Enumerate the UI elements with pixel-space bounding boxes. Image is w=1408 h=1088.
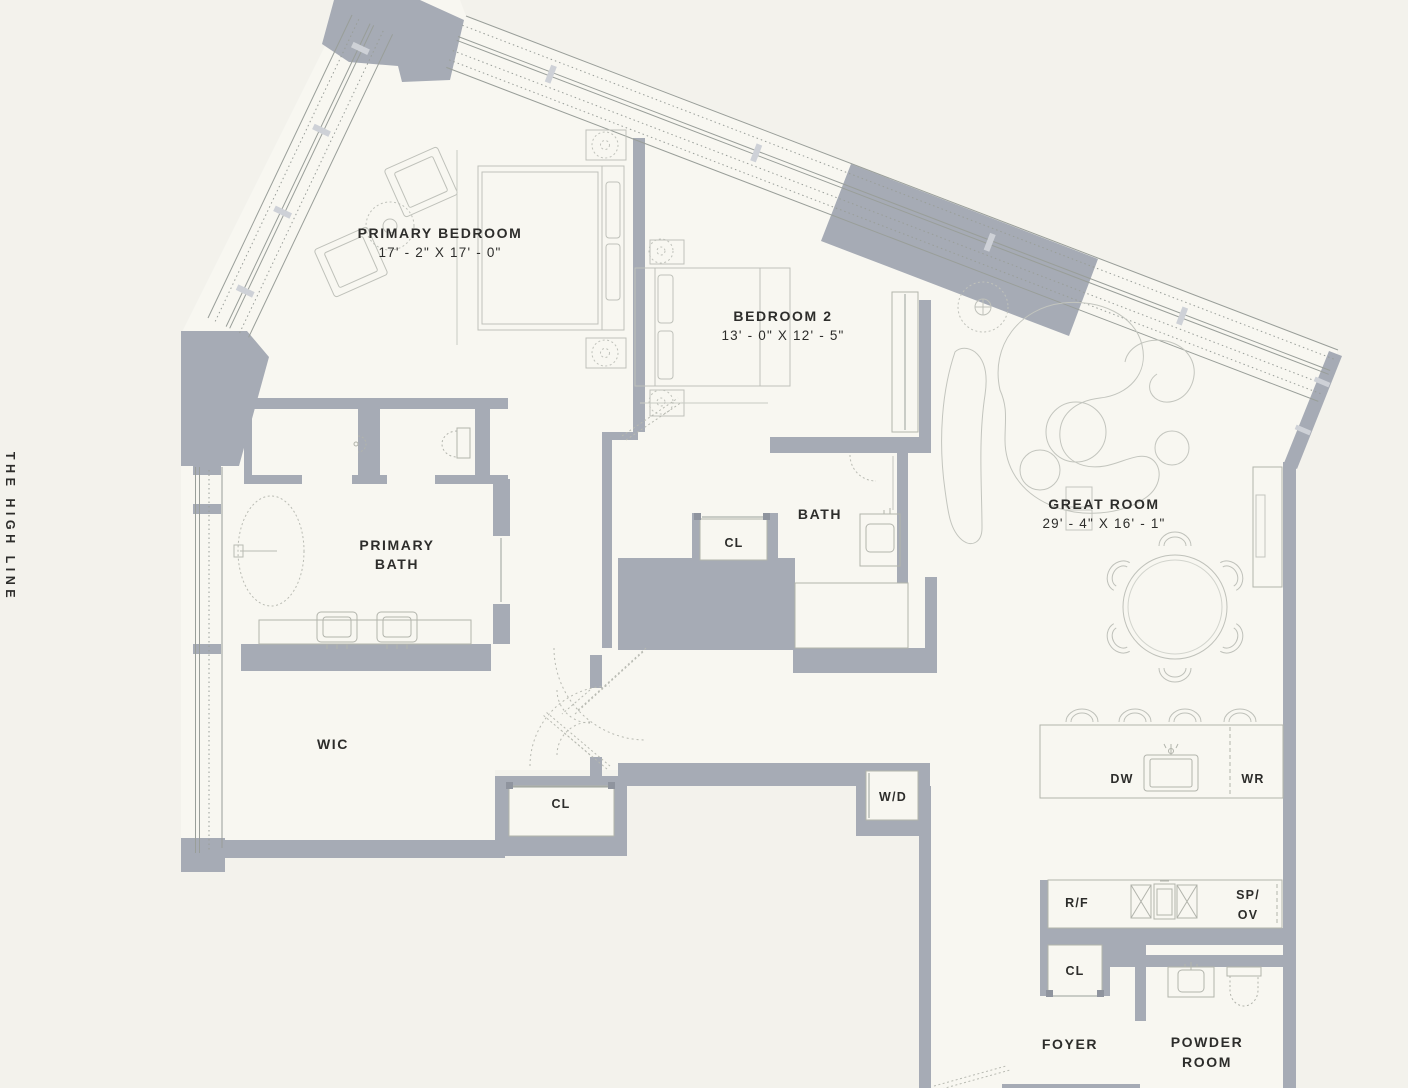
label-bedroom-2-dims: 13' - 0" X 12' - 5" bbox=[721, 328, 844, 343]
label-great-room: GREAT ROOM bbox=[1048, 496, 1159, 512]
label-bedroom-2: BEDROOM 2 bbox=[733, 308, 832, 324]
label-washer-dryer: W/D bbox=[879, 790, 907, 804]
label-bath: BATH bbox=[798, 506, 842, 522]
floor-plan: THE HIGH LINE PRIMARY BEDROOM 17' - 2" X… bbox=[0, 0, 1408, 1088]
closet-hall bbox=[509, 786, 614, 836]
label-powder-2: ROOM bbox=[1182, 1054, 1232, 1070]
label-wic: WIC bbox=[317, 736, 349, 752]
label-primary-bath-1: PRIMARY bbox=[359, 537, 434, 553]
label-powder-1: POWDER bbox=[1171, 1034, 1244, 1050]
cabinet-great-room bbox=[1253, 467, 1282, 587]
shower-room bbox=[795, 583, 908, 648]
label-closet-hall: CL bbox=[551, 797, 570, 811]
label-wine-refrigerator: WR bbox=[1241, 772, 1264, 786]
label-primary-bedroom-dims: 17' - 2" X 17' - 0" bbox=[378, 245, 501, 260]
label-primary-bath-2: BATH bbox=[375, 556, 419, 572]
label-speed-oven-1: SP/ bbox=[1236, 888, 1260, 902]
label-foyer: FOYER bbox=[1042, 1036, 1098, 1052]
floor-plan-page: THE HIGH LINE PRIMARY BEDROOM 17' - 2" X… bbox=[0, 0, 1408, 1088]
label-high-line: THE HIGH LINE bbox=[3, 452, 17, 602]
label-closet-foyer: CL bbox=[1065, 964, 1084, 978]
label-great-room-dims: 29' - 4" X 16' - 1" bbox=[1042, 516, 1165, 531]
label-primary-bedroom: PRIMARY BEDROOM bbox=[358, 225, 523, 241]
label-closet-bath: CL bbox=[724, 536, 743, 550]
facade-right bbox=[1283, 462, 1296, 1088]
label-speed-oven-2: OV bbox=[1238, 908, 1258, 922]
label-dishwasher: DW bbox=[1110, 772, 1133, 786]
label-refrigerator: R/F bbox=[1065, 896, 1089, 910]
kitchen-island bbox=[1040, 725, 1283, 798]
